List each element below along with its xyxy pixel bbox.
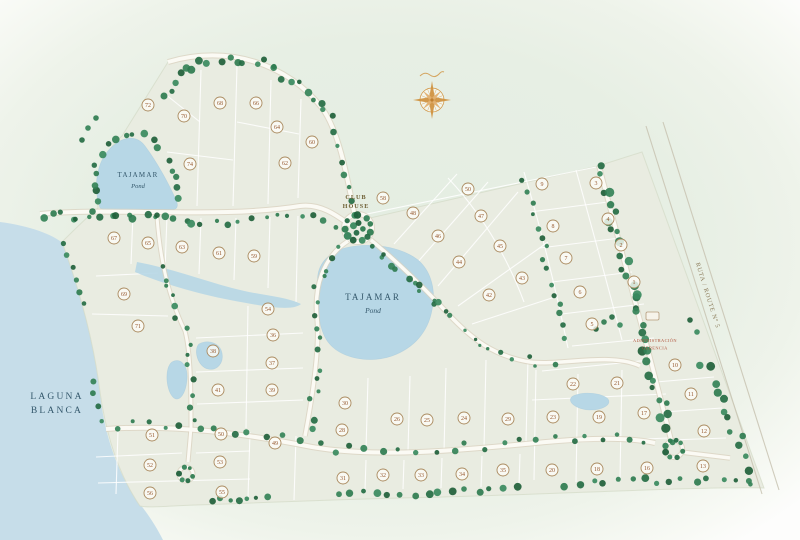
svg-text:69: 69 <box>121 292 127 298</box>
lot-marker[interactable]: 41 <box>212 384 224 396</box>
svg-text:54: 54 <box>265 307 271 313</box>
lot-marker[interactable]: 6 <box>574 286 586 298</box>
svg-text:8: 8 <box>552 224 555 230</box>
club-house-line2: HOUSE <box>343 203 370 210</box>
lot-marker[interactable]: 4 <box>602 213 614 225</box>
svg-text:6: 6 <box>579 290 582 296</box>
lot-marker[interactable]: 56 <box>144 487 156 499</box>
lot-marker[interactable]: 5 <box>586 318 598 330</box>
svg-text:4: 4 <box>607 217 610 223</box>
svg-text:55: 55 <box>219 490 225 496</box>
svg-text:32: 32 <box>380 473 386 479</box>
svg-text:5: 5 <box>591 322 594 328</box>
lot-marker[interactable]: 37 <box>266 357 278 369</box>
svg-text:66: 66 <box>253 101 259 107</box>
lot-marker[interactable]: 43 <box>516 272 528 284</box>
lot-marker[interactable]: 25 <box>421 414 433 426</box>
lot-marker[interactable]: 1 <box>628 276 640 288</box>
svg-text:36: 36 <box>270 333 276 339</box>
svg-text:24: 24 <box>461 416 467 422</box>
svg-text:63: 63 <box>179 245 185 251</box>
svg-text:62: 62 <box>282 161 288 167</box>
pond-center-subtitle: Pond <box>364 306 381 315</box>
svg-text:26: 26 <box>394 417 400 423</box>
svg-text:10: 10 <box>672 363 678 369</box>
lot-marker[interactable]: 71 <box>132 320 144 332</box>
lot-marker[interactable]: 7 <box>560 252 572 264</box>
map-canvas: 7270686664627460676563615969715438363741… <box>0 0 800 540</box>
svg-text:20: 20 <box>549 468 555 474</box>
lot-marker[interactable]: 16 <box>641 462 653 474</box>
svg-text:16: 16 <box>644 466 650 472</box>
svg-text:7: 7 <box>565 256 568 262</box>
lot-marker[interactable]: 2 <box>615 239 627 251</box>
svg-text:65: 65 <box>145 241 151 247</box>
svg-text:31: 31 <box>340 476 346 482</box>
svg-text:33: 33 <box>418 473 424 479</box>
lot-marker[interactable]: 33 <box>415 469 427 481</box>
svg-text:59: 59 <box>251 254 257 260</box>
lot-marker[interactable]: 28 <box>336 424 348 436</box>
svg-text:28: 28 <box>339 428 345 434</box>
svg-text:60: 60 <box>309 140 315 146</box>
estate-master-plan: 7270686664627460676563615969715438363741… <box>0 0 800 540</box>
lot-marker[interactable]: 48 <box>407 207 419 219</box>
svg-text:49: 49 <box>272 441 278 447</box>
svg-text:52: 52 <box>147 463 153 469</box>
svg-text:50: 50 <box>465 187 471 193</box>
compass-flourish <box>420 72 444 77</box>
svg-text:29: 29 <box>505 417 511 423</box>
svg-text:68: 68 <box>217 101 223 107</box>
svg-text:23: 23 <box>550 415 556 421</box>
svg-text:17: 17 <box>641 411 647 417</box>
svg-text:19: 19 <box>596 415 602 421</box>
svg-text:72: 72 <box>145 103 151 109</box>
svg-text:50: 50 <box>218 432 224 438</box>
lot-marker[interactable]: 3 <box>590 177 602 189</box>
lot-marker[interactable]: 26 <box>391 413 403 425</box>
svg-text:1: 1 <box>633 280 636 286</box>
lot-marker[interactable]: 17 <box>638 407 650 419</box>
lot-marker[interactable]: 8 <box>547 220 559 232</box>
svg-text:51: 51 <box>149 433 155 439</box>
svg-text:25: 25 <box>424 418 430 424</box>
svg-text:45: 45 <box>497 244 503 250</box>
lot-marker[interactable]: 64 <box>271 121 283 133</box>
lot-marker[interactable]: 10 <box>669 359 681 371</box>
lot-marker[interactable]: 13 <box>697 460 709 472</box>
lot-marker[interactable]: 30 <box>339 397 351 409</box>
lot-marker[interactable]: 35 <box>497 464 509 476</box>
svg-text:42: 42 <box>486 293 492 299</box>
lot-marker[interactable]: 52 <box>144 459 156 471</box>
svg-text:39: 39 <box>269 388 275 394</box>
lot-marker[interactable]: 12 <box>698 425 710 437</box>
lot-marker[interactable]: 47 <box>475 210 487 222</box>
lot-marker[interactable]: 42 <box>483 289 495 301</box>
lot-marker[interactable]: 59 <box>248 250 260 262</box>
svg-text:67: 67 <box>111 236 117 242</box>
lot-marker[interactable]: 66 <box>250 97 262 109</box>
lot-marker[interactable]: 69 <box>118 288 130 300</box>
svg-text:46: 46 <box>435 234 441 240</box>
lot-marker[interactable]: 22 <box>567 378 579 390</box>
svg-text:56: 56 <box>147 491 153 497</box>
lagoon-label-line2: BLANCA <box>31 406 83 416</box>
lot-marker[interactable]: 72 <box>142 99 154 111</box>
lot-marker[interactable]: 63 <box>176 241 188 253</box>
lot-marker[interactable]: 62 <box>279 157 291 169</box>
svg-text:21: 21 <box>614 381 620 387</box>
pond-center-name: TAJAMAR <box>345 292 401 302</box>
svg-text:30: 30 <box>342 401 348 407</box>
svg-text:34: 34 <box>459 472 465 478</box>
svg-text:18: 18 <box>594 467 600 473</box>
lot-marker[interactable]: 34 <box>456 468 468 480</box>
lot-marker[interactable]: 19 <box>593 411 605 423</box>
svg-text:41: 41 <box>215 388 221 394</box>
svg-text:53: 53 <box>217 460 223 466</box>
pond-left-name: TAJAMAR <box>118 171 159 179</box>
lagoon-label-line1: LAGUNA <box>30 392 83 402</box>
lot-marker[interactable]: 38 <box>207 345 219 357</box>
lot-marker[interactable]: 39 <box>266 384 278 396</box>
svg-text:64: 64 <box>274 125 280 131</box>
lot-marker[interactable]: 65 <box>142 237 154 249</box>
lot-marker[interactable]: 29 <box>502 413 514 425</box>
lot-marker[interactable]: 58 <box>377 192 389 204</box>
svg-text:61: 61 <box>216 251 222 257</box>
lot-marker[interactable]: 18 <box>591 463 603 475</box>
svg-text:22: 22 <box>570 382 576 388</box>
pond-left-subtitle: Pond <box>130 183 145 190</box>
lot-marker[interactable]: 44 <box>453 256 465 268</box>
lot-marker[interactable]: 68 <box>214 97 226 109</box>
svg-text:43: 43 <box>519 276 525 282</box>
svg-text:35: 35 <box>500 468 506 474</box>
lot-marker[interactable]: 70 <box>178 110 190 122</box>
lot-marker[interactable]: 50 <box>462 183 474 195</box>
lot-marker[interactable]: 9 <box>536 178 548 190</box>
lot-marker[interactable]: 60 <box>306 136 318 148</box>
svg-text:2: 2 <box>620 243 623 249</box>
svg-text:37: 37 <box>269 361 275 367</box>
lot-marker[interactable]: 45 <box>494 240 506 252</box>
svg-text:71: 71 <box>135 324 141 330</box>
lot-marker[interactable]: 36 <box>267 329 279 341</box>
svg-text:11: 11 <box>688 392 694 398</box>
lot-marker[interactable]: 46 <box>432 230 444 242</box>
lot-marker[interactable]: 67 <box>108 232 120 244</box>
lot-marker[interactable]: 55 <box>216 486 228 498</box>
svg-text:38: 38 <box>210 349 216 355</box>
lot-marker[interactable]: 61 <box>213 247 225 259</box>
lot-marker[interactable]: 21 <box>611 377 623 389</box>
lot-marker[interactable]: 74 <box>184 158 196 170</box>
admin-label-line1: ADMINISTRACIÓN <box>633 338 677 343</box>
compass-rose-icon <box>413 72 451 119</box>
lot-marker[interactable]: 51 <box>146 429 158 441</box>
lot-marker[interactable]: 31 <box>337 472 349 484</box>
lot-marker[interactable]: 53 <box>214 456 226 468</box>
svg-text:13: 13 <box>700 464 706 470</box>
svg-text:47: 47 <box>478 214 484 220</box>
lot-marker[interactable]: 11 <box>685 388 697 400</box>
admin-building-icon <box>646 312 659 320</box>
svg-text:70: 70 <box>181 114 187 120</box>
lot-marker[interactable]: 50 <box>215 428 227 440</box>
admin-label-line2: GERENCIA <box>642 346 668 351</box>
lot-marker[interactable]: 24 <box>458 412 470 424</box>
lot-marker[interactable]: 49 <box>269 437 281 449</box>
svg-text:12: 12 <box>701 429 707 435</box>
svg-text:44: 44 <box>456 260 462 266</box>
svg-text:74: 74 <box>187 162 193 168</box>
lot-marker[interactable]: 54 <box>262 303 274 315</box>
svg-text:3: 3 <box>595 181 598 187</box>
lot-marker[interactable]: 32 <box>377 469 389 481</box>
svg-text:58: 58 <box>380 196 386 202</box>
lot-marker[interactable]: 20 <box>546 464 558 476</box>
club-house-line1: CLUB <box>345 194 366 201</box>
svg-text:9: 9 <box>541 182 544 188</box>
lot-marker[interactable]: 23 <box>547 411 559 423</box>
svg-text:48: 48 <box>410 211 416 217</box>
